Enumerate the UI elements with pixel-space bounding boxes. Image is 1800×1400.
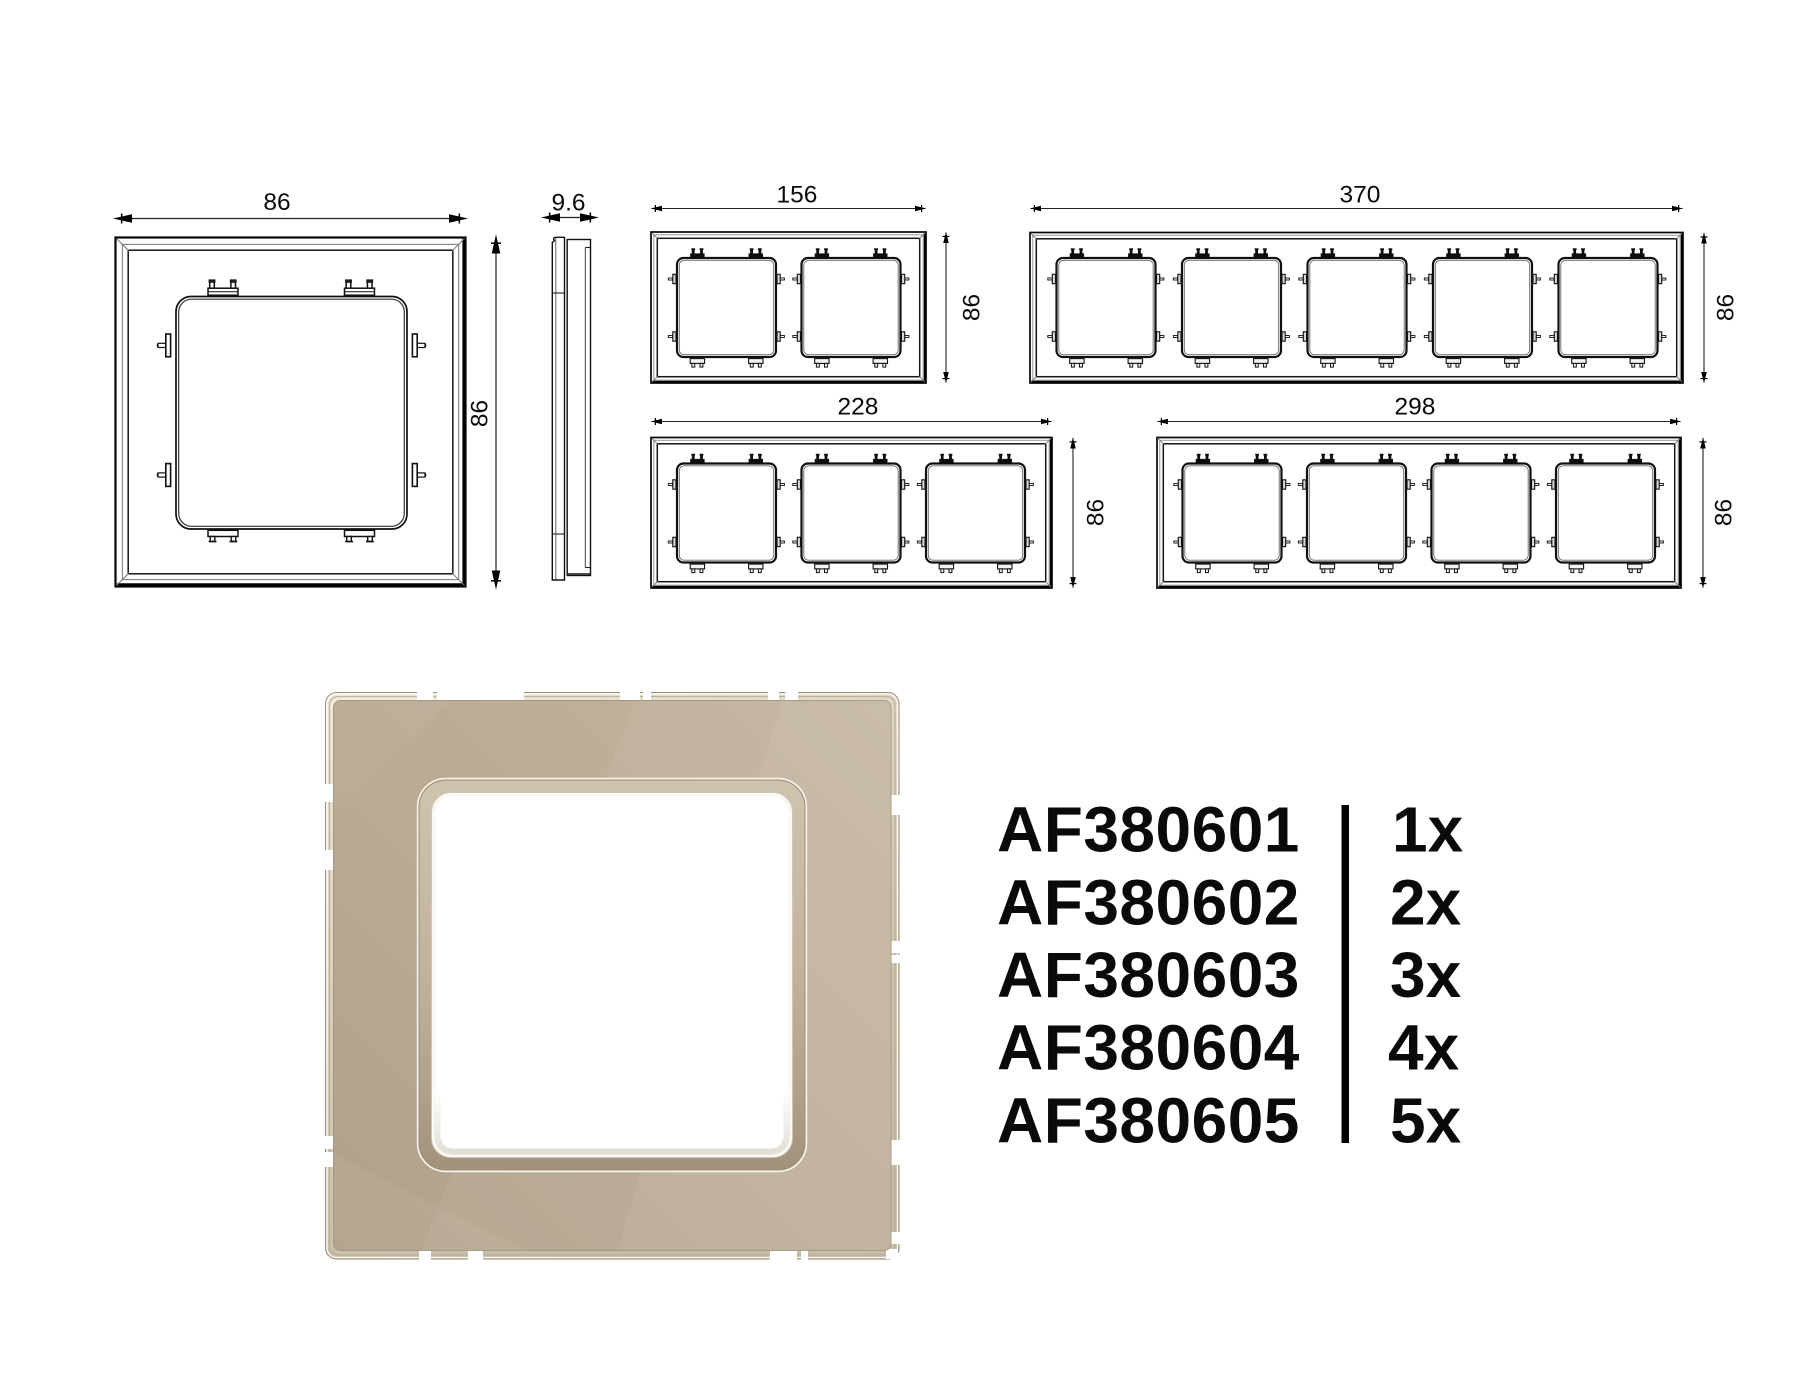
svg-text:370: 370 — [1340, 182, 1381, 209]
svg-text:86: 86 — [1083, 499, 1110, 526]
svg-text:3x: 3x — [1390, 939, 1462, 1011]
svg-text:1x: 1x — [1392, 794, 1464, 866]
svg-text:5x: 5x — [1390, 1085, 1462, 1157]
svg-text:9.6: 9.6 — [551, 190, 585, 217]
svg-text:298: 298 — [1395, 394, 1436, 421]
svg-text:AF380604: AF380604 — [997, 1012, 1300, 1084]
svg-text:86: 86 — [1713, 294, 1740, 321]
svg-text:AF380602: AF380602 — [997, 867, 1300, 939]
svg-text:4x: 4x — [1388, 1012, 1460, 1084]
svg-text:2x: 2x — [1390, 867, 1462, 939]
svg-text:AF380601: AF380601 — [997, 794, 1300, 866]
svg-text:AF380603: AF380603 — [997, 939, 1300, 1011]
svg-text:228: 228 — [838, 394, 879, 421]
svg-text:86: 86 — [959, 294, 986, 321]
svg-text:86: 86 — [263, 189, 290, 216]
svg-text:86: 86 — [1711, 499, 1738, 526]
svg-text:AF380605: AF380605 — [997, 1085, 1300, 1157]
svg-text:86: 86 — [467, 400, 494, 427]
svg-text:156: 156 — [777, 182, 818, 209]
